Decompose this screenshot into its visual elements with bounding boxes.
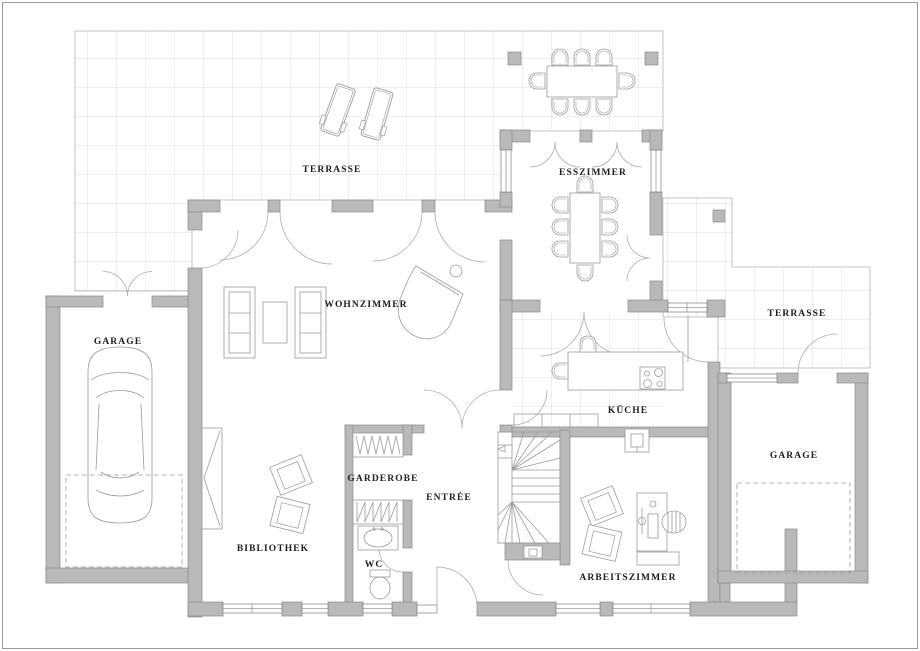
sink-niche bbox=[625, 429, 649, 452]
terrace-column bbox=[508, 52, 521, 65]
coffee-table bbox=[263, 302, 287, 343]
room-label-garage-left: GARAGE bbox=[94, 337, 142, 347]
window bbox=[556, 604, 600, 613]
room-label-esszimmer: ESSZIMMER bbox=[559, 168, 627, 178]
room-label-garage-right: GARAGE bbox=[770, 451, 818, 461]
window bbox=[613, 604, 690, 613]
floor-plan-drawing: TERRASSE ESSZIMMER TERRASSE WOHNZIMMER G… bbox=[0, 0, 920, 651]
room-label-bibliothek: BIBLIOTHEK bbox=[237, 544, 309, 554]
window bbox=[727, 374, 777, 382]
room-label-terrasse-top: TERRASSE bbox=[303, 165, 362, 175]
room-label-terrasse-right: TERRASSE bbox=[768, 309, 827, 319]
window bbox=[363, 604, 392, 613]
window bbox=[302, 604, 328, 613]
entry-sill bbox=[417, 605, 437, 613]
floor-plan-page: TERRASSE ESSZIMMER TERRASSE WOHNZIMMER G… bbox=[0, 0, 920, 651]
room-label-garderobe: GARDEROBE bbox=[347, 474, 418, 484]
terrace-column bbox=[645, 52, 658, 65]
room-label-wohnzimmer: WOHNZIMMER bbox=[324, 300, 407, 310]
desk-return bbox=[637, 552, 679, 565]
toilet bbox=[370, 570, 390, 599]
library-bay bbox=[202, 428, 222, 529]
office-chair bbox=[662, 511, 686, 533]
window bbox=[501, 150, 511, 192]
wc-sink bbox=[358, 526, 398, 550]
car bbox=[88, 347, 152, 523]
window bbox=[223, 604, 282, 613]
room-label-entree: ENTRÉE bbox=[426, 491, 472, 503]
room-label-wc: WC bbox=[365, 560, 384, 570]
window bbox=[651, 150, 661, 192]
piano-stool bbox=[450, 265, 462, 277]
room-label-arbeitszimmer: ARBEITSZIMMER bbox=[579, 573, 676, 583]
terrace-column bbox=[713, 210, 725, 222]
window bbox=[668, 303, 707, 312]
